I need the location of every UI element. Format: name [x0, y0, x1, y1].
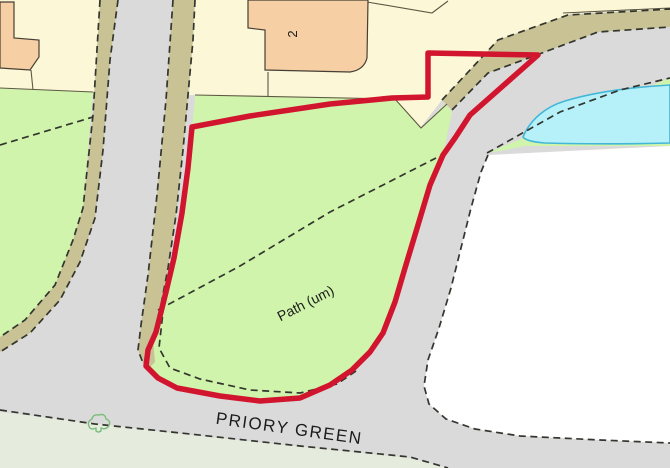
- site-plan-map: 2 Path (um) PRIORY GREEN: [0, 0, 670, 468]
- building-2: [248, 0, 368, 72]
- map-canvas: 2 Path (um) PRIORY GREEN: [0, 0, 670, 468]
- building-number-label: 2: [285, 30, 300, 37]
